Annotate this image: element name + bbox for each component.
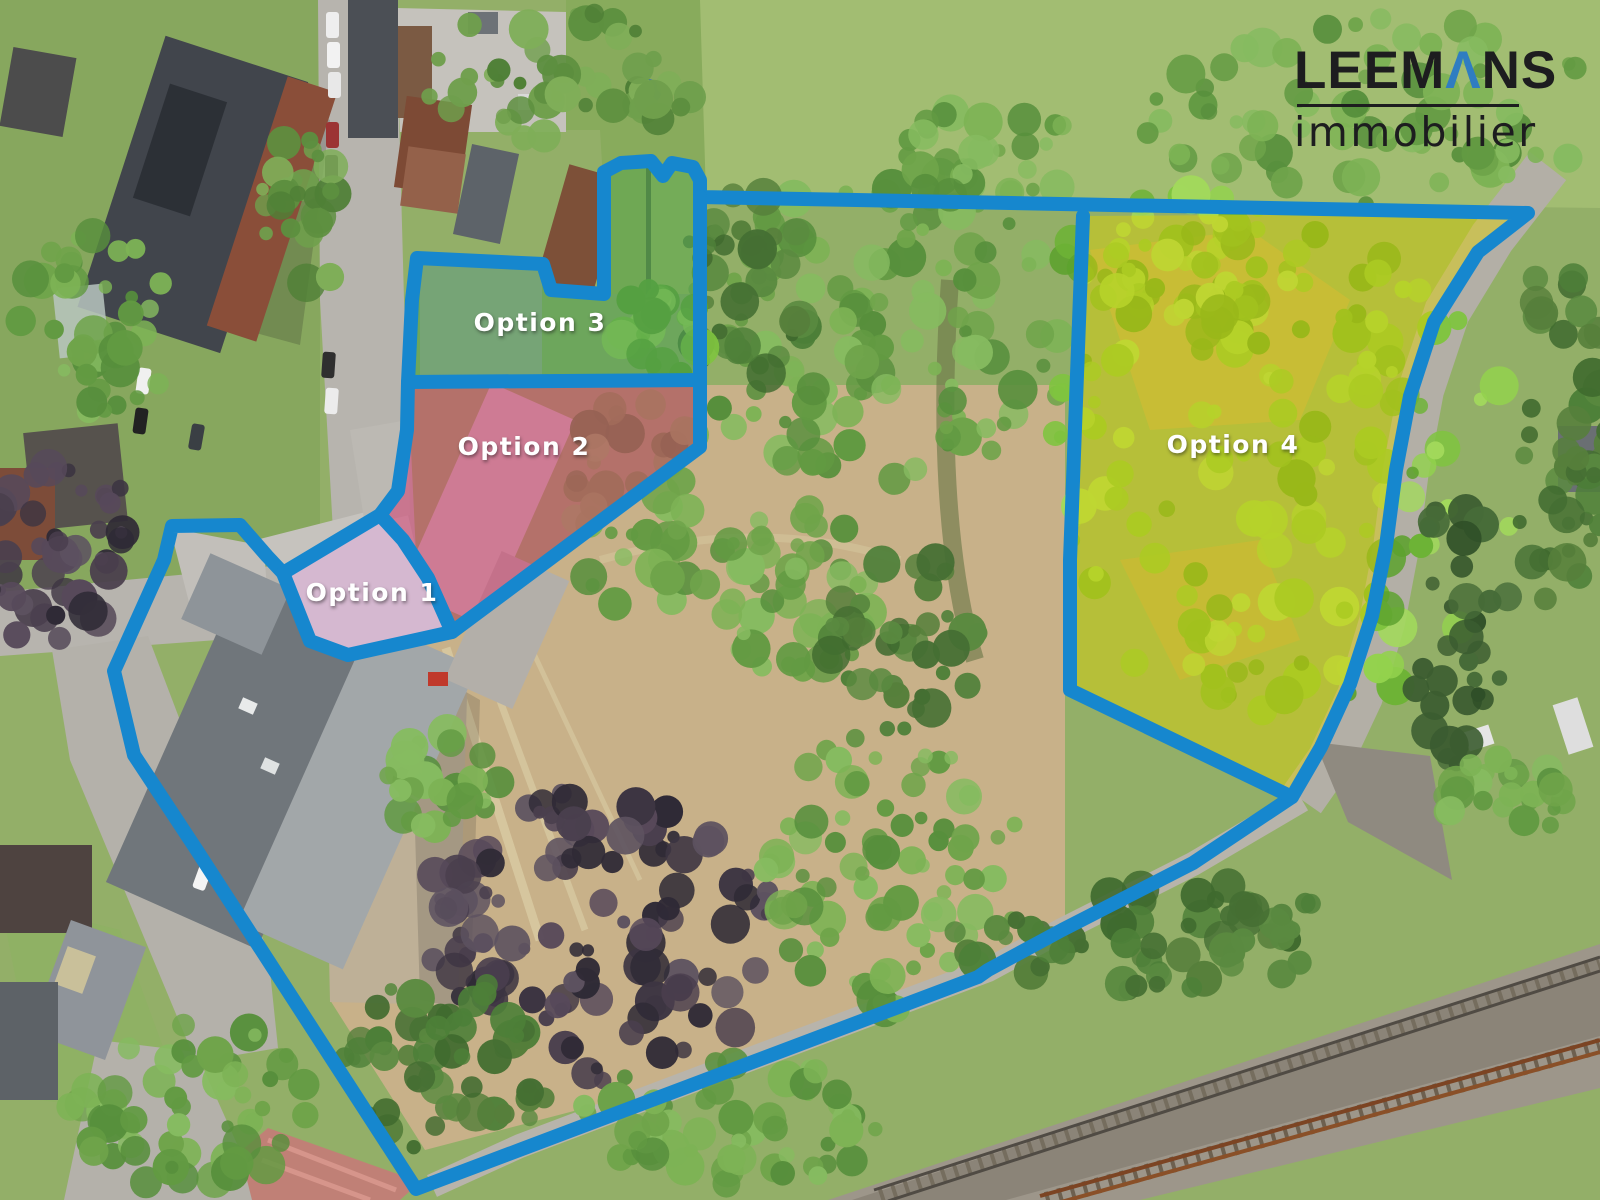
logo-divider-line: [1297, 104, 1519, 107]
aerial-photo: Option 1 Option 2 Option 3 Option 4: [0, 0, 1600, 1200]
option-4-label: Option 4: [1167, 430, 1300, 459]
option-2-label: Option 2: [458, 432, 591, 461]
aerial-site-plan: Option 1 Option 2 Option 3 Option 4 LEEM…: [0, 0, 1600, 1200]
option-3-label: Option 3: [474, 308, 607, 337]
logo-subtitle: immobilier: [1294, 112, 1574, 153]
row-houses: [348, 0, 398, 138]
zone-divider-2-3: [408, 380, 700, 382]
leemans-logo: LEEMΛNS immobilier: [1294, 44, 1574, 153]
logo-accent-letter: Λ: [1445, 41, 1481, 100]
option-1-label: Option 1: [306, 578, 439, 607]
logo-wordmark: LEEMΛNS: [1294, 44, 1574, 97]
